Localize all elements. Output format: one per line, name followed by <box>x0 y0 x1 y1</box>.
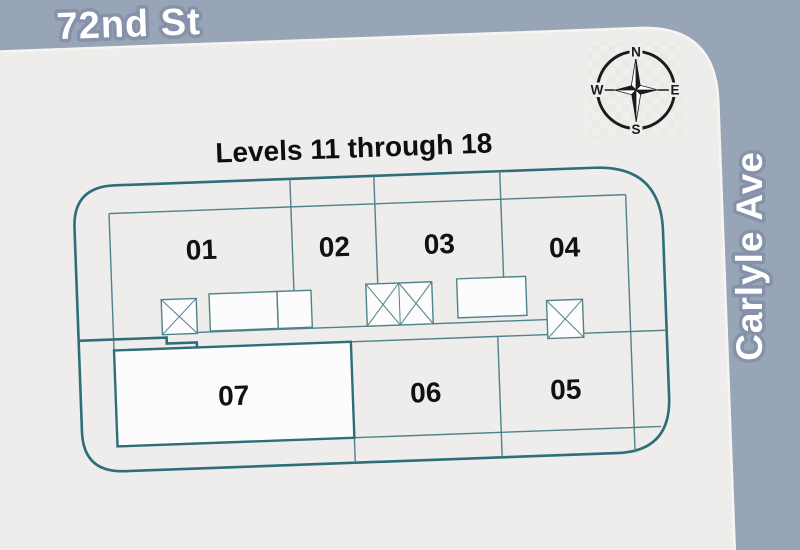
compass-rose: N E S W <box>588 42 683 138</box>
double-elevator-box <box>366 282 433 326</box>
floor-plan-page: Levels 11 through 18 <box>0 0 800 550</box>
compass-south-label: S <box>631 122 640 137</box>
elevator-box <box>546 299 583 338</box>
unit-02-label[interactable]: 02 <box>318 231 350 263</box>
compass-west-label: W <box>591 83 604 98</box>
core-room-box <box>277 290 312 328</box>
stair-box <box>457 276 527 318</box>
stair-box <box>209 291 278 330</box>
street-label-carlyle-ave: Carlyle Ave <box>729 151 770 361</box>
unit-01-label[interactable]: 01 <box>185 234 217 266</box>
unit-05-label[interactable]: 05 <box>550 373 582 405</box>
unit-03-label[interactable]: 03 <box>423 228 455 260</box>
elevator-box <box>161 298 197 334</box>
compass-east-label: E <box>670 83 679 98</box>
unit-06-label[interactable]: 06 <box>410 377 442 409</box>
street-label-72nd-st: 72nd St <box>56 1 202 48</box>
unit-04-label[interactable]: 04 <box>548 231 581 263</box>
unit-07-label[interactable]: 07 <box>218 380 250 412</box>
floor-plan-canvas: Levels 11 through 18 <box>0 0 800 550</box>
compass-north-label: N <box>631 45 641 60</box>
